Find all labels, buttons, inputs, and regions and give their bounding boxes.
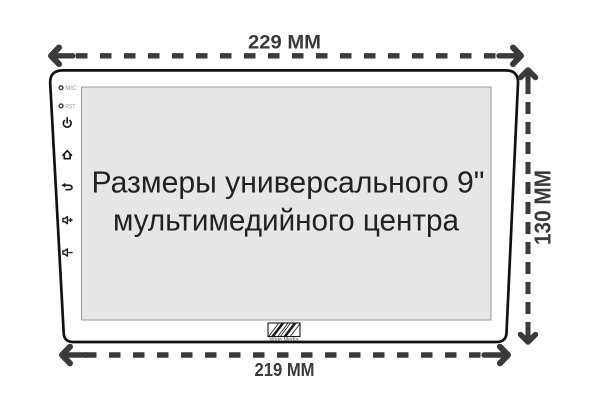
svg-text:RST: RST (65, 103, 75, 110)
svg-text:MIC: MIC (65, 85, 76, 92)
svg-text:130 MM: 130 MM (530, 170, 556, 245)
svg-text:Размеры универсального 9": Размеры универсального 9" (92, 165, 485, 200)
svg-text:229 MM: 229 MM (248, 32, 321, 54)
svg-text:Wide Media: Wide Media (270, 337, 299, 343)
svg-text:219 MM: 219 MM (255, 359, 315, 380)
svg-text:мультимедийного центра: мультимедийного центра (113, 203, 460, 238)
